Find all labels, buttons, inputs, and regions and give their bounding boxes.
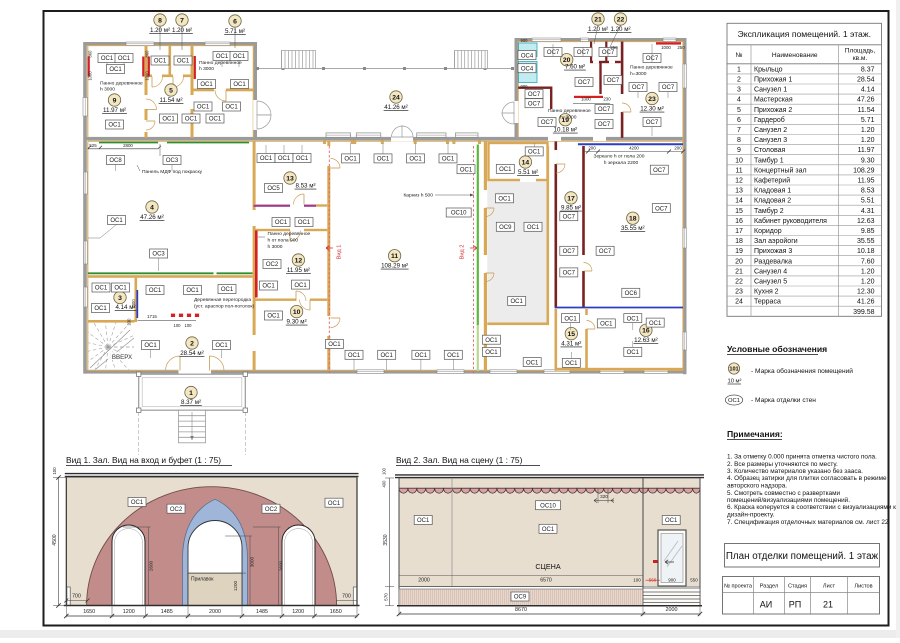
svg-text:ОС1: ОС1 — [526, 360, 539, 366]
svg-text:14: 14 — [522, 159, 530, 166]
svg-text:11.95 м²: 11.95 м² — [287, 267, 310, 274]
svg-text:Панно деревянное: Панно деревянное — [268, 231, 311, 237]
svg-text:900: 900 — [521, 38, 529, 43]
svg-text:2600: 2600 — [149, 560, 154, 571]
svg-text:Раздевалка: Раздевалка — [754, 258, 792, 265]
svg-text:17: 17 — [567, 195, 575, 202]
svg-text:ОС7: ОС7 — [598, 122, 611, 128]
svg-text:ОС1: ОС1 — [267, 314, 280, 320]
svg-text:7.60 м²: 7.60 м² — [565, 64, 585, 71]
svg-text:Кабинет руководителя: Кабинет руководителя — [754, 217, 827, 225]
svg-text:399.58: 399.58 — [853, 309, 875, 316]
svg-text:ОС1: ОС1 — [185, 117, 198, 123]
svg-text:Крыльцо: Крыльцо — [754, 66, 783, 73]
svg-text:ОС1: ОС1 — [278, 156, 291, 162]
svg-text:23: 23 — [735, 289, 743, 296]
svg-text:ОС7: ОС7 — [528, 92, 541, 98]
svg-text:ОС1: ОС1 — [200, 82, 213, 88]
svg-text:ОС1: ОС1 — [511, 299, 524, 305]
svg-text:15: 15 — [735, 208, 743, 215]
svg-text:5.51 м²: 5.51 м² — [518, 169, 538, 176]
svg-text:ОС1: ОС1 — [95, 286, 108, 292]
svg-text:ОС7: ОС7 — [607, 78, 620, 84]
svg-text:ОС7: ОС7 — [563, 214, 576, 220]
svg-text:16: 16 — [642, 328, 650, 335]
svg-text:Гардероб: Гардероб — [754, 116, 785, 124]
svg-text:Условные обозначения: Условные обозначения — [727, 344, 827, 354]
svg-text:8670: 8670 — [515, 607, 527, 613]
svg-text:1: 1 — [737, 66, 741, 73]
svg-text:Панно деревянное: Панно деревянное — [548, 108, 591, 114]
svg-text:h=3000: h=3000 — [630, 71, 647, 77]
svg-text:ОС1: ОС1 — [221, 287, 234, 293]
svg-text:21: 21 — [735, 268, 743, 275]
svg-text:ОС1: ОС1 — [328, 501, 341, 507]
svg-text:11.97 м²: 11.97 м² — [103, 107, 126, 114]
svg-text:10.18 м²: 10.18 м² — [554, 127, 578, 134]
svg-text:Вид 2: Вид 2 — [460, 245, 466, 260]
svg-text:700: 700 — [342, 594, 351, 600]
svg-text:200: 200 — [588, 146, 596, 151]
svg-text:230: 230 — [603, 97, 611, 102]
svg-text:4.14: 4.14 — [861, 87, 875, 94]
svg-text:8: 8 — [158, 17, 162, 24]
svg-text:ОС1: ОС1 — [162, 117, 175, 123]
svg-text:ОС7: ОС7 — [563, 249, 576, 255]
svg-text:8.53 м²: 8.53 м² — [295, 183, 315, 190]
svg-text:4. Образец затирки для плитки: 4. Образец затирки для плитки согласоват… — [727, 474, 887, 482]
svg-text:6: 6 — [233, 18, 237, 25]
svg-text:Лист: Лист — [823, 584, 836, 590]
svg-text:Листов: Листов — [854, 584, 872, 590]
svg-text:9.85: 9.85 — [861, 228, 875, 235]
svg-text:250: 250 — [677, 45, 685, 50]
svg-text:ОС2: ОС2 — [265, 507, 278, 513]
svg-text:Кухня 2: Кухня 2 — [754, 289, 779, 296]
svg-text:ОС1: ОС1 — [177, 59, 190, 65]
svg-text:ОС9: ОС9 — [514, 595, 527, 601]
svg-text:101: 101 — [729, 367, 738, 373]
svg-text:10.18: 10.18 — [857, 248, 875, 255]
svg-text:7. Спецификация отделочных мат: 7. Спецификация отделочных материалов см… — [727, 519, 889, 526]
svg-text:5.71: 5.71 — [861, 117, 875, 124]
svg-text:41.26 м²: 41.26 м² — [384, 104, 408, 111]
svg-text:3530: 3530 — [383, 534, 389, 545]
svg-text:8.37: 8.37 — [861, 66, 875, 73]
svg-text:ОС7: ОС7 — [598, 107, 611, 113]
svg-text:Примечания:: Примечания: — [727, 429, 783, 439]
svg-text:ОС1: ОС1 — [415, 353, 428, 359]
svg-text:19: 19 — [735, 248, 743, 255]
svg-text:11: 11 — [735, 167, 742, 174]
svg-text:ОС1: ОС1 — [409, 157, 422, 163]
svg-text:ОС1: ОС1 — [114, 286, 127, 292]
svg-text:Кладовая 2: Кладовая 2 — [754, 198, 791, 205]
svg-text:4500: 4500 — [52, 534, 58, 545]
svg-text:4200: 4200 — [629, 146, 639, 151]
svg-text:24: 24 — [735, 299, 743, 306]
svg-text:35.55: 35.55 — [857, 238, 875, 245]
svg-text:Раздел: Раздел — [760, 584, 779, 590]
svg-text:400: 400 — [382, 480, 387, 488]
svg-text:5.51: 5.51 — [861, 198, 875, 205]
svg-text:22: 22 — [735, 279, 743, 286]
svg-text:ОС10: ОС10 — [540, 503, 556, 509]
svg-text:(уст. араспор пол-потолок): (уст. араспор пол-потолок) — [194, 304, 254, 310]
svg-text:ОС1: ОС1 — [328, 342, 341, 348]
svg-text:ОС1: ОС1 — [381, 353, 394, 359]
svg-text:ОС7: ОС7 — [577, 50, 590, 56]
svg-text:ОС1: ОС1 — [498, 197, 511, 203]
svg-text:ОС1: ОС1 — [197, 105, 210, 111]
svg-text:1000: 1000 — [661, 45, 671, 50]
svg-text:ОС7: ОС7 — [563, 271, 576, 277]
svg-text:ОС7: ОС7 — [602, 50, 615, 56]
svg-text:ОС2: ОС2 — [170, 507, 183, 513]
svg-text:ОС1: ОС1 — [600, 322, 613, 328]
svg-text:ОС7: ОС7 — [528, 101, 541, 107]
svg-text:10: 10 — [735, 157, 743, 164]
svg-text:230: 230 — [127, 318, 132, 326]
svg-text:860: 860 — [145, 50, 150, 58]
svg-text:ОС1: ОС1 — [298, 220, 311, 226]
svg-text:4: 4 — [737, 97, 741, 104]
svg-text:ОС1: ОС1 — [499, 167, 512, 173]
svg-text:8.53: 8.53 — [861, 188, 875, 195]
svg-text:h=3000: h=3000 — [560, 115, 577, 121]
svg-text:- Марка обозначения помещений: - Марка обозначения помещений — [751, 367, 853, 375]
svg-text:108.29 м²: 108.29 м² — [381, 263, 408, 270]
svg-text:8.37 м²: 8.37 м² — [181, 399, 201, 406]
svg-text:18: 18 — [629, 216, 637, 223]
svg-text:900: 900 — [668, 578, 676, 583]
svg-text:ОС7: ОС7 — [599, 249, 612, 255]
svg-text:28.54 м²: 28.54 м² — [180, 350, 204, 357]
svg-text:Кафетерий: Кафетерий — [754, 177, 790, 185]
svg-text:15: 15 — [568, 331, 576, 338]
svg-text:2: 2 — [190, 340, 194, 347]
svg-text:ОС2: ОС2 — [266, 262, 279, 268]
svg-text:Санузел 5: Санузел 5 — [754, 279, 787, 286]
svg-text:1200: 1200 — [233, 580, 238, 591]
svg-text:ОС1: ОС1 — [527, 225, 540, 231]
svg-text:Панно деревянное: Панно деревянное — [630, 65, 673, 71]
svg-text:12.30 м²: 12.30 м² — [640, 106, 664, 113]
svg-text:ОС1: ОС1 — [542, 527, 555, 533]
svg-text:Санузел 4: Санузел 4 — [754, 268, 787, 275]
svg-text:ОС1: ОС1 — [225, 105, 238, 111]
svg-text:3: 3 — [118, 295, 122, 302]
svg-text:ОС1: ОС1 — [94, 306, 107, 312]
svg-text:ОС3: ОС3 — [152, 252, 165, 258]
svg-text:10 м²: 10 м² — [728, 379, 742, 385]
svg-text:100: 100 — [174, 323, 182, 328]
svg-text:4.31: 4.31 — [861, 208, 875, 215]
svg-text:Карниз h 500: Карниз h 500 — [403, 193, 433, 199]
svg-text:900: 900 — [521, 84, 529, 89]
svg-text:3. Количество материалов указа: 3. Количество материалов указано без заа… — [727, 467, 863, 475]
svg-text:Площадь,: Площадь, — [845, 48, 876, 55]
svg-text:ОС1: ОС1 — [209, 117, 222, 123]
svg-text:ОС1: ОС1 — [627, 316, 640, 322]
svg-text:ОС3: ОС3 — [166, 158, 179, 164]
svg-text:1000: 1000 — [88, 71, 93, 81]
svg-text:ОС1: ОС1 — [665, 518, 678, 524]
svg-text:5. Смотреть совместно с развер: 5. Смотреть совместно с развертками — [727, 490, 840, 497]
svg-text:Панно деревянное: Панно деревянное — [100, 81, 143, 87]
svg-text:700: 700 — [72, 594, 81, 600]
svg-text:4: 4 — [150, 204, 154, 211]
svg-text:1: 1 — [189, 390, 193, 397]
svg-text:ОС7: ОС7 — [655, 206, 668, 212]
svg-text:12.63: 12.63 — [857, 218, 875, 225]
svg-text:41.26: 41.26 — [857, 299, 875, 306]
svg-text:35.55 м²: 35.55 м² — [621, 225, 645, 232]
svg-text:1715: 1715 — [147, 314, 157, 319]
svg-text:1200: 1200 — [123, 609, 135, 615]
svg-text:ОС1: ОС1 — [447, 353, 460, 359]
svg-text:h 3000: h 3000 — [268, 244, 283, 250]
svg-text:9: 9 — [113, 97, 117, 104]
svg-text:ОС10: ОС10 — [451, 211, 467, 217]
svg-text:525: 525 — [89, 143, 97, 148]
svg-text:7: 7 — [737, 127, 741, 134]
svg-text:47.26: 47.26 — [857, 97, 875, 104]
svg-text:13: 13 — [735, 188, 743, 195]
svg-text:Прихожая 3: Прихожая 3 — [754, 248, 792, 255]
svg-text:1.20 м²: 1.20 м² — [588, 26, 608, 33]
svg-text:ОС1: ОС1 — [154, 59, 167, 65]
svg-text:ОС1: ОС1 — [118, 56, 131, 62]
svg-text:9.30: 9.30 — [861, 157, 875, 164]
svg-text:860: 860 — [88, 50, 93, 58]
svg-text:ОС1: ОС1 — [131, 500, 144, 506]
svg-text:Концертный зал: Концертный зал — [754, 166, 807, 174]
svg-text:Стадия: Стадия — [788, 584, 807, 590]
svg-text:ОС1: ОС1 — [377, 157, 390, 163]
svg-text:6. Краска колеруется в соответ: 6. Краска колеруется в соответствии с ви… — [727, 504, 896, 511]
svg-text:ОС7: ОС7 — [547, 50, 560, 56]
svg-text:108.29: 108.29 — [853, 167, 875, 174]
svg-text:Санузел 2: Санузел 2 — [754, 127, 787, 134]
svg-text:ОС1: ОС1 — [233, 82, 246, 88]
svg-text:20: 20 — [735, 258, 743, 265]
svg-text:11.97: 11.97 — [858, 147, 875, 154]
svg-text:21: 21 — [823, 600, 833, 610]
svg-text:Санузел 1: Санузел 1 — [754, 87, 787, 94]
svg-text:ОС5: ОС5 — [267, 186, 280, 192]
svg-text:8: 8 — [737, 137, 741, 144]
svg-text:24: 24 — [392, 94, 400, 101]
svg-text:№ проекта: № проекта — [724, 584, 753, 590]
svg-text:Вид 1: Вид 1 — [337, 245, 343, 260]
svg-text:28.54: 28.54 — [857, 77, 875, 84]
svg-text:12.63 м²: 12.63 м² — [634, 337, 658, 344]
svg-text:21: 21 — [594, 16, 602, 23]
svg-text:12: 12 — [295, 257, 303, 264]
svg-text:авторского надзора.: авторского надзора. — [727, 483, 787, 490]
svg-text:Зеркало h от пола 200: Зеркало h от пола 200 — [594, 154, 645, 160]
svg-text:кв.м.: кв.м. — [853, 55, 868, 62]
svg-text:h от пола 900: h от пола 900 — [268, 238, 299, 244]
svg-text:Мастерская: Мастерская — [754, 97, 793, 104]
svg-text:ОС1: ОС1 — [216, 54, 229, 60]
svg-text:100: 100 — [633, 578, 641, 583]
svg-text:320: 320 — [600, 494, 608, 499]
svg-text:ОС1: ОС1 — [460, 167, 473, 173]
svg-text:47.26 м²: 47.26 м² — [140, 214, 164, 221]
svg-text:Прихожая 2: Прихожая 2 — [754, 107, 792, 114]
svg-text:4.31 м²: 4.31 м² — [561, 340, 581, 347]
svg-text:7: 7 — [180, 17, 184, 24]
svg-text:6: 6 — [737, 117, 741, 124]
svg-text:1000: 1000 — [131, 299, 136, 309]
svg-text:АИ: АИ — [760, 600, 772, 610]
svg-text:2. Все размеры уточняются по м: 2. Все размеры уточняются по месту. — [727, 461, 838, 468]
svg-text:Прихожая 1: Прихожая 1 — [754, 77, 792, 84]
svg-text:Тамбур 1: Тамбур 1 — [754, 156, 784, 164]
svg-text:3: 3 — [737, 87, 741, 94]
svg-text:ОС8: ОС8 — [109, 158, 122, 164]
svg-text:7.60: 7.60 — [861, 258, 875, 265]
svg-text:12.30: 12.30 — [857, 289, 875, 296]
svg-text:1650: 1650 — [330, 609, 342, 615]
svg-text:ОС1: ОС1 — [528, 150, 541, 156]
svg-text:100: 100 — [185, 323, 193, 328]
svg-text:ОС1: ОС1 — [296, 156, 309, 162]
svg-text:2000: 2000 — [418, 578, 430, 584]
svg-text:18: 18 — [735, 238, 743, 245]
svg-text:14: 14 — [735, 198, 743, 205]
svg-text:2000: 2000 — [666, 607, 678, 613]
svg-text:9: 9 — [737, 147, 741, 154]
svg-text:550: 550 — [690, 578, 698, 583]
svg-text:Вид 2. Зал. Вид на сцену (1 :: Вид 2. Зал. Вид на сцену (1 : 75) — [396, 455, 523, 465]
svg-text:11.54: 11.54 — [858, 107, 875, 114]
svg-text:1000: 1000 — [145, 71, 150, 81]
svg-text:дизайн-проекту.: дизайн-проекту. — [727, 511, 775, 519]
svg-text:Деревянная перегородка: Деревянная перегородка — [194, 297, 251, 303]
svg-text:5: 5 — [169, 87, 173, 94]
svg-text:ОС4: ОС4 — [521, 53, 534, 59]
svg-text:ОС7: ОС7 — [662, 85, 675, 91]
svg-text:1.20: 1.20 — [861, 279, 875, 286]
svg-text:ОС7: ОС7 — [646, 56, 659, 62]
svg-text:ОС7: ОС7 — [632, 85, 645, 91]
svg-text:1000: 1000 — [581, 97, 591, 102]
svg-text:16: 16 — [735, 218, 743, 225]
svg-text:ОС1: ОС1 — [485, 338, 498, 344]
svg-text:ОС1: ОС1 — [186, 288, 199, 294]
svg-text:3000: 3000 — [250, 556, 255, 567]
svg-text:ОС1: ОС1 — [442, 157, 455, 163]
svg-text:СЦЕНА: СЦЕНА — [535, 562, 560, 571]
svg-text:ОС1: ОС1 — [348, 353, 361, 359]
svg-text:h 3000: h 3000 — [100, 87, 115, 93]
svg-text:2: 2 — [737, 77, 741, 84]
svg-text:ОС1: ОС1 — [565, 361, 578, 367]
svg-text:22: 22 — [617, 16, 625, 23]
svg-text:1485: 1485 — [161, 609, 173, 615]
svg-text:1. За отметку 0.000 принята от: 1. За отметку 0.000 принята отметка чист… — [727, 454, 877, 461]
svg-text:2000: 2000 — [209, 609, 221, 615]
svg-text:ОС1: ОС1 — [260, 156, 273, 162]
svg-text:11: 11 — [391, 253, 398, 260]
svg-text:13: 13 — [286, 175, 294, 182]
svg-text:h 3000: h 3000 — [199, 66, 214, 72]
svg-text:Терраса: Терраса — [754, 299, 781, 306]
svg-text:ОС1: ОС1 — [417, 518, 430, 524]
svg-text:- Марка отделки стен: - Марка отделки стен — [751, 397, 816, 404]
svg-text:ОС1: ОС1 — [144, 343, 157, 349]
svg-text:11.54 м²: 11.54 м² — [159, 97, 182, 104]
svg-text:помещений/визуализациями помещ: помещений/визуализациями помещений. — [727, 496, 850, 504]
svg-text:ОС1: ОС1 — [294, 283, 307, 289]
svg-text:Санузел 3: Санузел 3 — [754, 137, 787, 144]
svg-text:100: 100 — [382, 467, 387, 475]
svg-text:Столовая: Столовая — [754, 147, 786, 154]
svg-text:ОС1: ОС1 — [344, 157, 357, 163]
svg-text:h зеркала 2200: h зеркала 2200 — [604, 160, 639, 166]
svg-text:ОС7: ОС7 — [541, 120, 554, 126]
svg-text:2600: 2600 — [279, 560, 284, 571]
svg-text:1200: 1200 — [292, 609, 304, 615]
svg-text:1.20: 1.20 — [861, 127, 875, 134]
svg-text:Тамбур 2: Тамбур 2 — [754, 207, 784, 215]
svg-text:ОС1: ОС1 — [215, 343, 228, 349]
svg-text:23: 23 — [648, 96, 656, 103]
svg-text:Коридор: Коридор — [754, 228, 782, 235]
svg-text:ОС1: ОС1 — [728, 398, 740, 404]
svg-text:ОС1: ОС1 — [262, 284, 275, 290]
svg-text:Панель МДФ под покраску: Панель МДФ под покраску — [142, 169, 203, 175]
svg-text:570: 570 — [384, 593, 389, 601]
svg-text:10: 10 — [293, 309, 301, 316]
svg-text:ОС7: ОС7 — [646, 120, 659, 126]
svg-text:2800: 2800 — [123, 143, 133, 148]
svg-text:№: № — [735, 52, 742, 59]
svg-text:9.30 м²: 9.30 м² — [287, 319, 307, 326]
svg-text:ОС4: ОС4 — [521, 66, 534, 72]
svg-text:1.20: 1.20 — [861, 137, 875, 144]
svg-text:ОС1: ОС1 — [275, 220, 288, 226]
svg-text:ОС7: ОС7 — [578, 80, 591, 86]
svg-text:6570: 6570 — [540, 578, 552, 584]
svg-text:ОС1: ОС1 — [649, 321, 662, 327]
svg-text:Панно деревянное: Панно деревянное — [199, 60, 242, 66]
svg-text:ОС1: ОС1 — [109, 67, 122, 73]
svg-text:12: 12 — [735, 178, 743, 185]
svg-text:РП: РП — [789, 600, 801, 610]
svg-text:9.85 м²: 9.85 м² — [561, 205, 581, 212]
svg-text:ОС1: ОС1 — [627, 350, 640, 356]
svg-text:17: 17 — [735, 228, 743, 235]
svg-text:1.20 м²: 1.20 м² — [610, 26, 630, 33]
svg-text:ОС1: ОС1 — [101, 56, 114, 62]
svg-text:100: 100 — [52, 467, 57, 475]
svg-text:Прилавок: Прилавок — [191, 577, 214, 583]
svg-text:ОС1: ОС1 — [564, 316, 577, 322]
svg-text:ОС1: ОС1 — [233, 54, 246, 60]
svg-text:200: 200 — [674, 146, 682, 151]
svg-text:1485: 1485 — [256, 609, 268, 615]
svg-text:ОС6: ОС6 — [625, 291, 638, 297]
svg-text:Кладовая 1: Кладовая 1 — [754, 188, 791, 195]
svg-text:Вид 1. Зал. Вид на вход и буфе: Вид 1. Зал. Вид на вход и буфет (1 : 75) — [66, 455, 221, 465]
svg-text:ОС7: ОС7 — [653, 168, 666, 174]
svg-text:ВВЕРХ: ВВЕРХ — [112, 354, 132, 361]
svg-text:11.95: 11.95 — [858, 178, 875, 185]
